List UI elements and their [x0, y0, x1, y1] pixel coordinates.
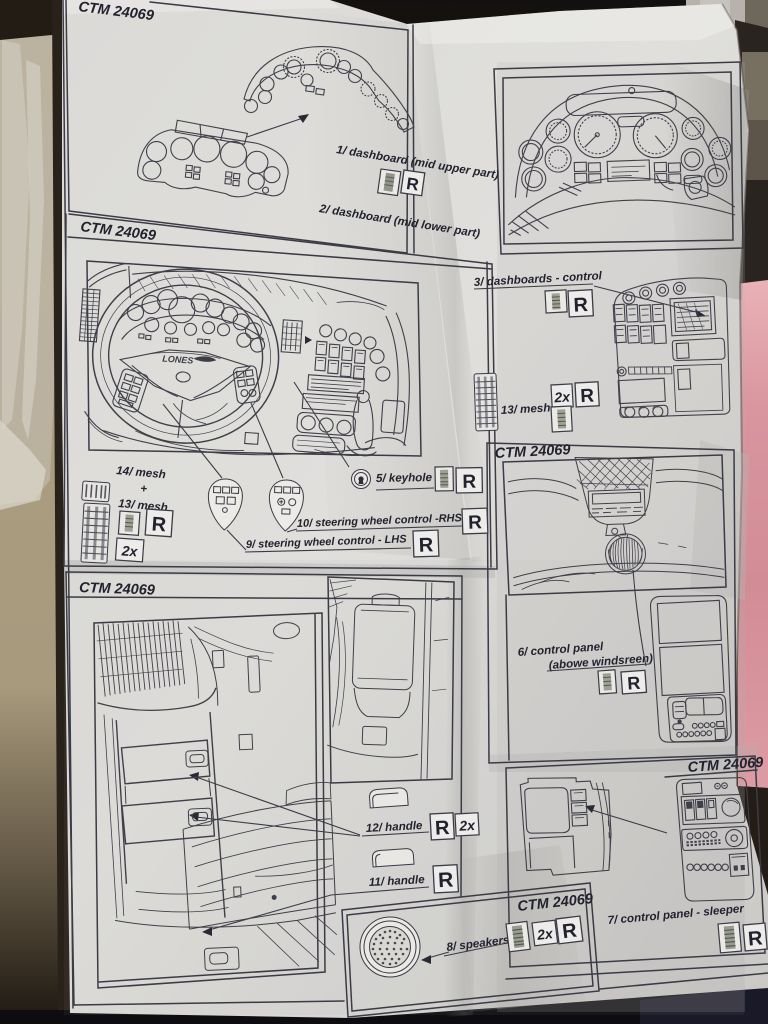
svg-text:R: R — [747, 927, 764, 950]
svg-text:R: R — [151, 513, 167, 536]
svg-text:R: R — [580, 386, 595, 408]
svg-text:+: + — [140, 482, 148, 496]
svg-text:13/ mesh: 13/ mesh — [500, 401, 550, 417]
svg-text:2x: 2x — [535, 925, 555, 943]
svg-text:2x: 2x — [120, 542, 139, 559]
svg-text:R: R — [573, 294, 589, 317]
svg-text:5/ keyhole: 5/ keyhole — [376, 471, 433, 485]
svg-text:2x: 2x — [458, 817, 477, 834]
svg-text:R: R — [468, 512, 483, 533]
svg-text:R: R — [462, 472, 476, 493]
svg-text:2x: 2x — [553, 388, 572, 405]
svg-text:R: R — [627, 673, 641, 694]
svg-text:R: R — [434, 817, 450, 840]
svg-text:R: R — [405, 174, 420, 195]
svg-text:CTM 24069: CTM 24069 — [79, 580, 155, 599]
svg-text:R: R — [418, 534, 434, 557]
svg-text:R: R — [438, 868, 454, 892]
